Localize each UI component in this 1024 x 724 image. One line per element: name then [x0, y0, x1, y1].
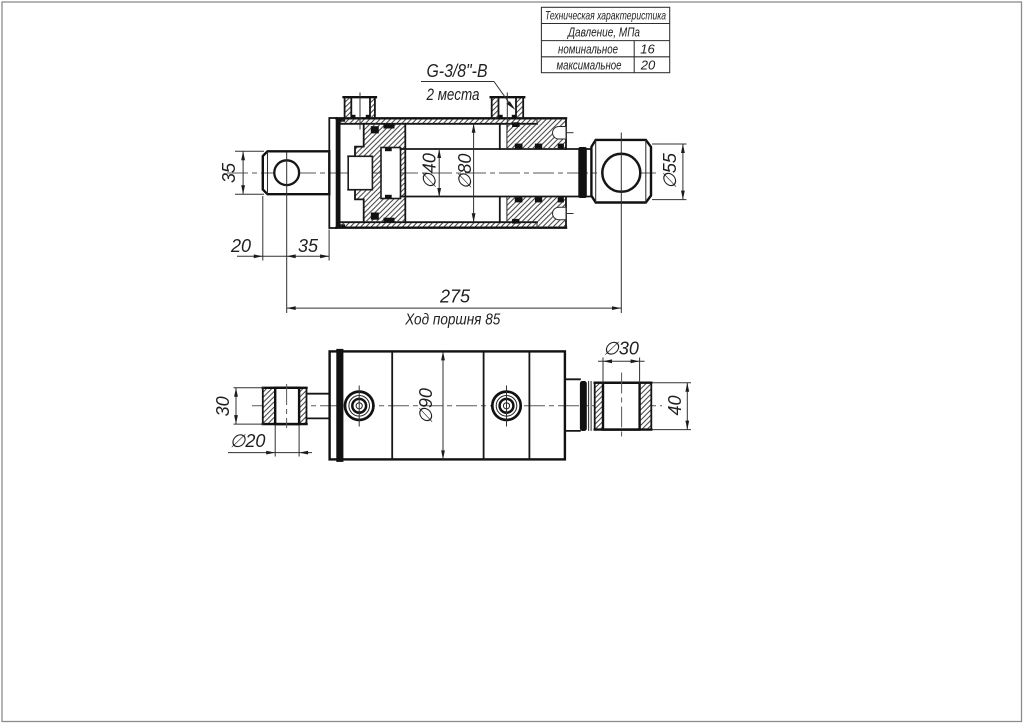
svg-text:20: 20: [230, 236, 251, 256]
svg-text:∅20: ∅20: [230, 431, 266, 451]
svg-text:275: 275: [439, 287, 471, 307]
svg-text:G-3/8"-B: G-3/8"-B: [427, 61, 488, 81]
svg-text:∅40: ∅40: [420, 153, 440, 189]
svg-text:16: 16: [640, 41, 655, 56]
svg-text:Ход поршня 85: Ход поршня 85: [404, 312, 500, 329]
svg-text:∅90: ∅90: [416, 388, 436, 424]
svg-text:номинальное: номинальное: [558, 41, 618, 56]
svg-text:40: 40: [665, 395, 685, 415]
svg-text:максимальное: максимальное: [557, 57, 622, 72]
svg-text:∅30: ∅30: [603, 339, 639, 359]
svg-text:35: 35: [219, 162, 239, 183]
svg-text:30: 30: [213, 396, 233, 416]
svg-text:∅55: ∅55: [660, 152, 680, 189]
svg-text:∅80: ∅80: [455, 154, 475, 190]
svg-text:Давление, МПа: Давление, МПа: [566, 25, 640, 40]
svg-text:35: 35: [298, 236, 319, 256]
svg-text:Техническая характеристика: Техническая характеристика: [545, 9, 666, 23]
svg-text:20: 20: [640, 57, 656, 72]
svg-text:2 места: 2 места: [426, 85, 480, 104]
